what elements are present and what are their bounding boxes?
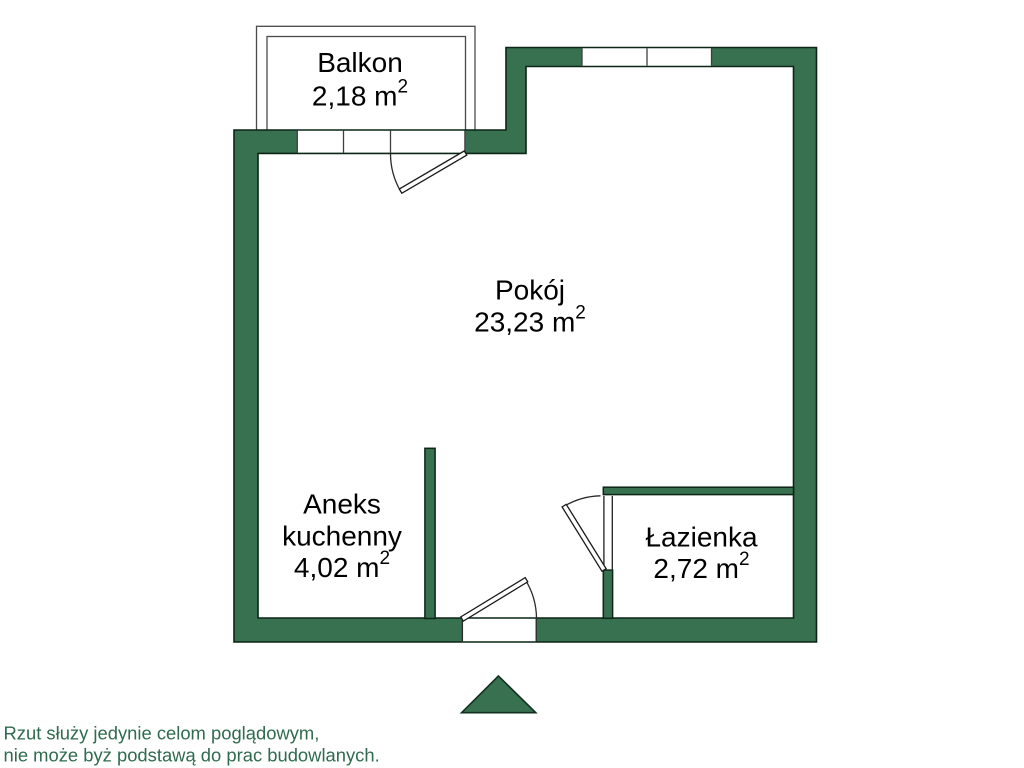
svg-text:nie może byż podstawą do prac: nie może byż podstawą do prac budowlanyc…	[4, 745, 380, 766]
svg-text:Rzut służy jedynie celom poglą: Rzut służy jedynie celom poglądowym,	[4, 723, 320, 744]
svg-text:Łazienka: Łazienka	[645, 522, 758, 553]
svg-text:2,18 m2: 2,18 m2	[312, 77, 408, 112]
svg-text:23,23 m2: 23,23 m2	[474, 303, 586, 338]
svg-text:2,72 m2: 2,72 m2	[653, 549, 749, 584]
svg-text:Aneks: Aneks	[303, 489, 381, 520]
svg-text:kuchenny: kuchenny	[282, 521, 402, 552]
svg-text:Balkon: Balkon	[317, 47, 403, 78]
svg-text:Pokój: Pokój	[495, 275, 565, 306]
svg-text:4,02 m2: 4,02 m2	[294, 548, 390, 583]
